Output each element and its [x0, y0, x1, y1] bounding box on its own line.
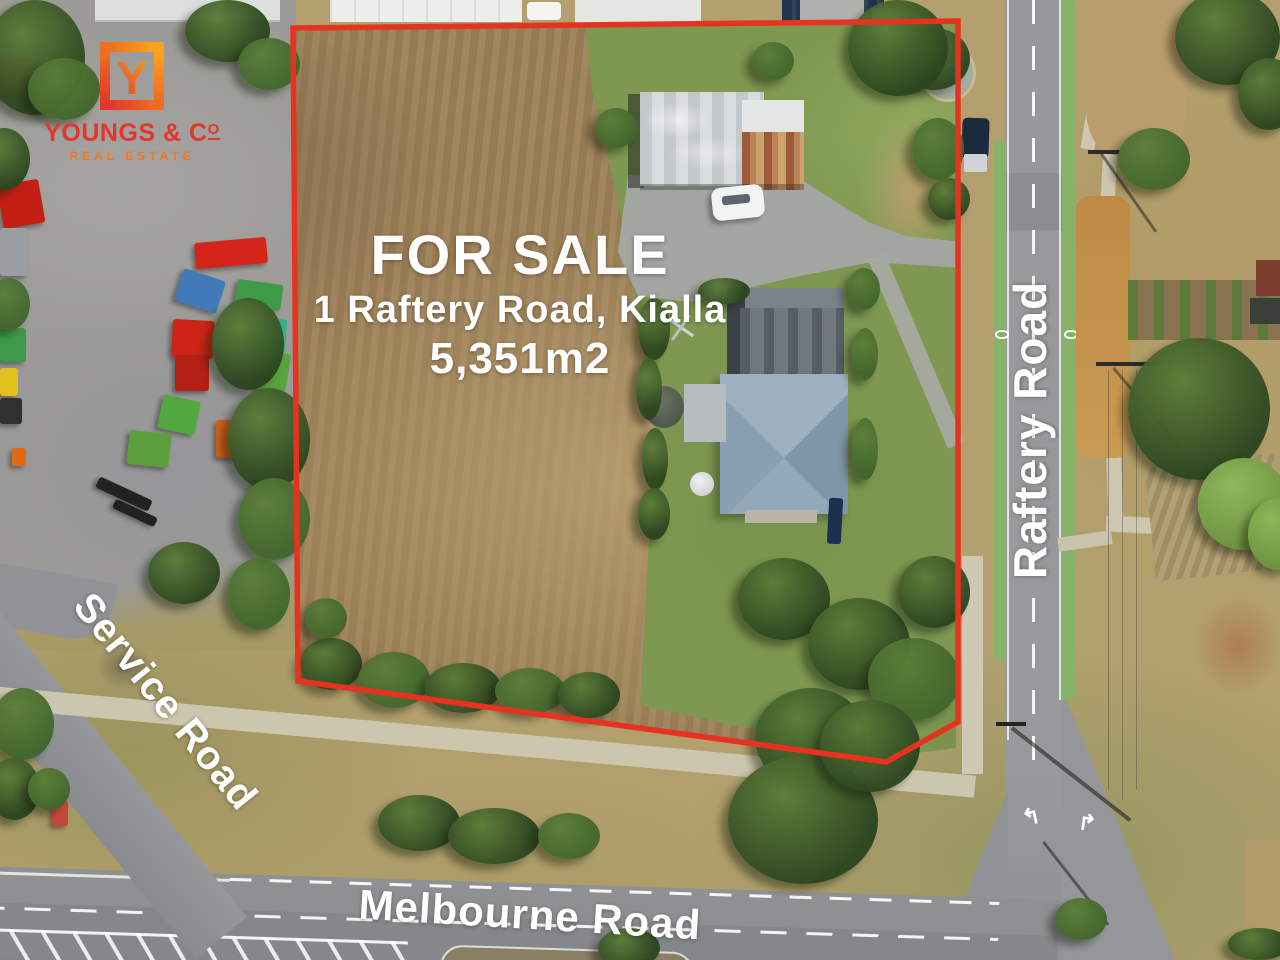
land-area: 5,351m2: [280, 334, 760, 384]
logo-tagline: REAL ESTATE: [42, 149, 222, 163]
logo-mark-frame: Y: [100, 42, 164, 110]
logo-name-text: YOUNGS & C: [44, 119, 207, 147]
property-boundary: [293, 21, 958, 762]
for-sale-headline: FOR SALE: [280, 222, 760, 287]
logo-name-small-o: O: [208, 121, 220, 140]
brand-logo: Y YOUNGS & CO REAL ESTATE: [42, 42, 222, 163]
logo-name: YOUNGS & CO: [42, 119, 222, 148]
listing-address: 1 Raftery Road, Kialla: [280, 289, 760, 332]
for-sale-overlay: FOR SALE 1 Raftery Road, Kialla 5,351m2: [280, 222, 760, 384]
road-label-raftery: Raftery Road: [1003, 281, 1057, 579]
aerial-photo-scene: ↰ ↱ ↰ FOR S: [0, 0, 1280, 960]
logo-mark: Y: [117, 51, 148, 105]
